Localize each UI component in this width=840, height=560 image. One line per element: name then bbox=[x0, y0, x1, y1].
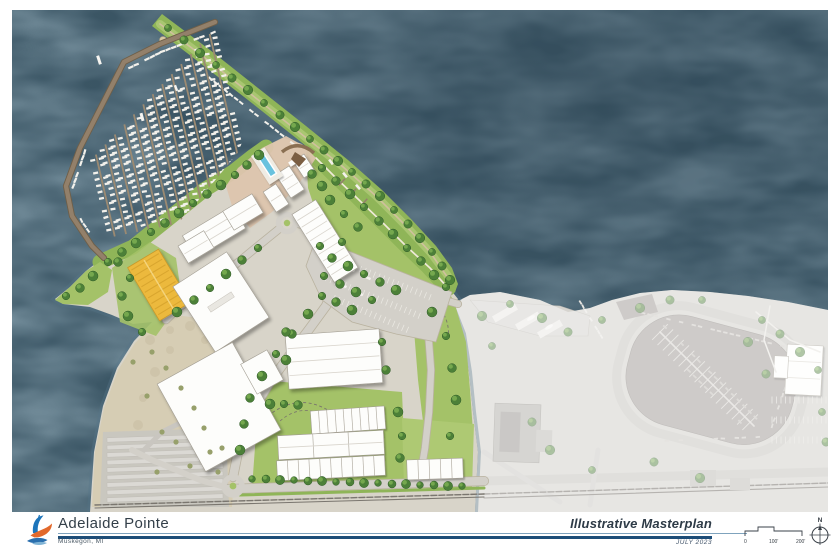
project-location: Muskegon, MI bbox=[58, 538, 104, 545]
sheet-date: JULY 2023 bbox=[676, 539, 712, 546]
sheet-title: Illustrative Masterplan bbox=[570, 516, 712, 531]
scale-mid: 100' bbox=[769, 539, 778, 545]
sailboat-logo bbox=[24, 512, 56, 550]
project-name: Adelaide Pointe bbox=[58, 515, 169, 532]
scale-bar: 0 100' 200' bbox=[742, 521, 806, 545]
existing-area-overlay bbox=[452, 290, 828, 512]
north-arrow-icon: N bbox=[806, 514, 834, 548]
north-label: N bbox=[818, 517, 823, 524]
masterplan-drawing bbox=[12, 10, 828, 512]
sheet: Adelaide Pointe Muskegon, MI Illustrativ… bbox=[0, 0, 840, 560]
title-rule-light bbox=[58, 533, 747, 534]
scale-end: 200' bbox=[796, 539, 805, 545]
scale-zero: 0 bbox=[744, 539, 747, 545]
masterplan-map bbox=[12, 10, 828, 512]
title-rule-dark bbox=[58, 536, 712, 539]
